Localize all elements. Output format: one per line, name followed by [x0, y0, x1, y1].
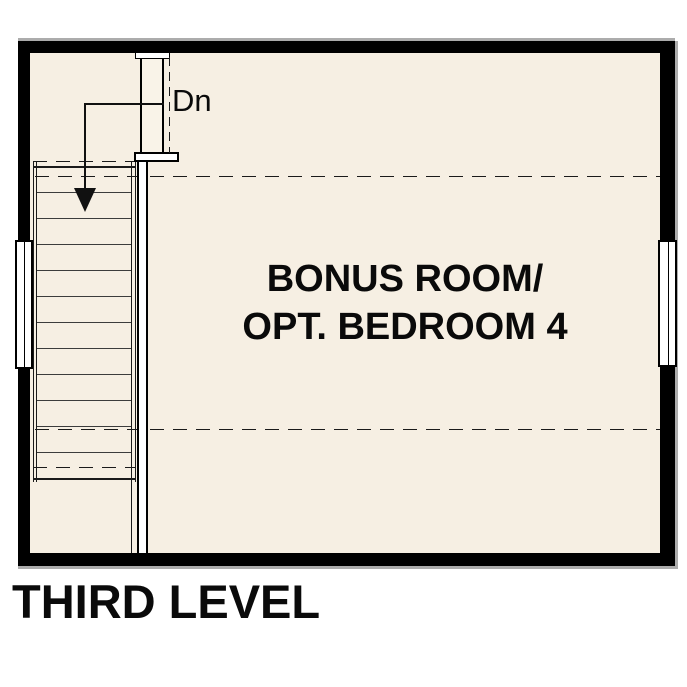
stair-tread-line	[37, 426, 131, 427]
stair-stringer-right-inner	[135, 162, 136, 482]
page-title: THIRD LEVEL	[12, 578, 320, 625]
stair-landing-edge	[134, 152, 179, 162]
stair-tread-line	[37, 400, 131, 401]
stair-tread-line	[37, 452, 131, 453]
stair-tread-line	[37, 322, 131, 323]
stair-tread-line	[37, 374, 131, 375]
stair-stringer-right-outer	[131, 162, 132, 553]
stair-tread-line	[37, 348, 131, 349]
ceiling-break-line-upper	[35, 176, 660, 177]
stair-partition-wall	[137, 158, 148, 553]
stair-tread-line	[37, 218, 131, 219]
room-name-line1: BONUS ROOM/	[150, 255, 660, 303]
ceiling-break-line-lower	[35, 429, 660, 430]
stair-direction-label: Dn	[172, 85, 212, 116]
down-arrow-icon	[74, 188, 96, 212]
stair-rail-cap	[135, 52, 170, 59]
down-arrow-shaft	[84, 103, 86, 192]
stair-tread-line	[37, 296, 131, 297]
room-name-label: BONUS ROOM/ OPT. BEDROOM 4	[150, 255, 660, 351]
left-window	[15, 240, 33, 369]
stair-stringer-left-outer	[33, 162, 34, 482]
room-name-line2: OPT. BEDROOM 4	[150, 303, 660, 351]
floor-plan: Dn BONUS ROOM/ OPT. BEDROOM 4 THIRD LEVE…	[0, 0, 687, 687]
stair-break-line-bottom	[33, 467, 135, 468]
left-window-mullion	[24, 242, 25, 367]
wall-shadow-bottom	[18, 566, 678, 569]
right-window	[658, 240, 677, 367]
stair-tread-line	[37, 270, 131, 271]
stair-opening-dashed-line	[169, 57, 170, 153]
down-arrow-leader-horizontal	[85, 103, 164, 105]
stair-tread-line	[37, 244, 131, 245]
right-window-mullion	[668, 242, 669, 365]
stair-bottom-edge	[33, 478, 135, 480]
